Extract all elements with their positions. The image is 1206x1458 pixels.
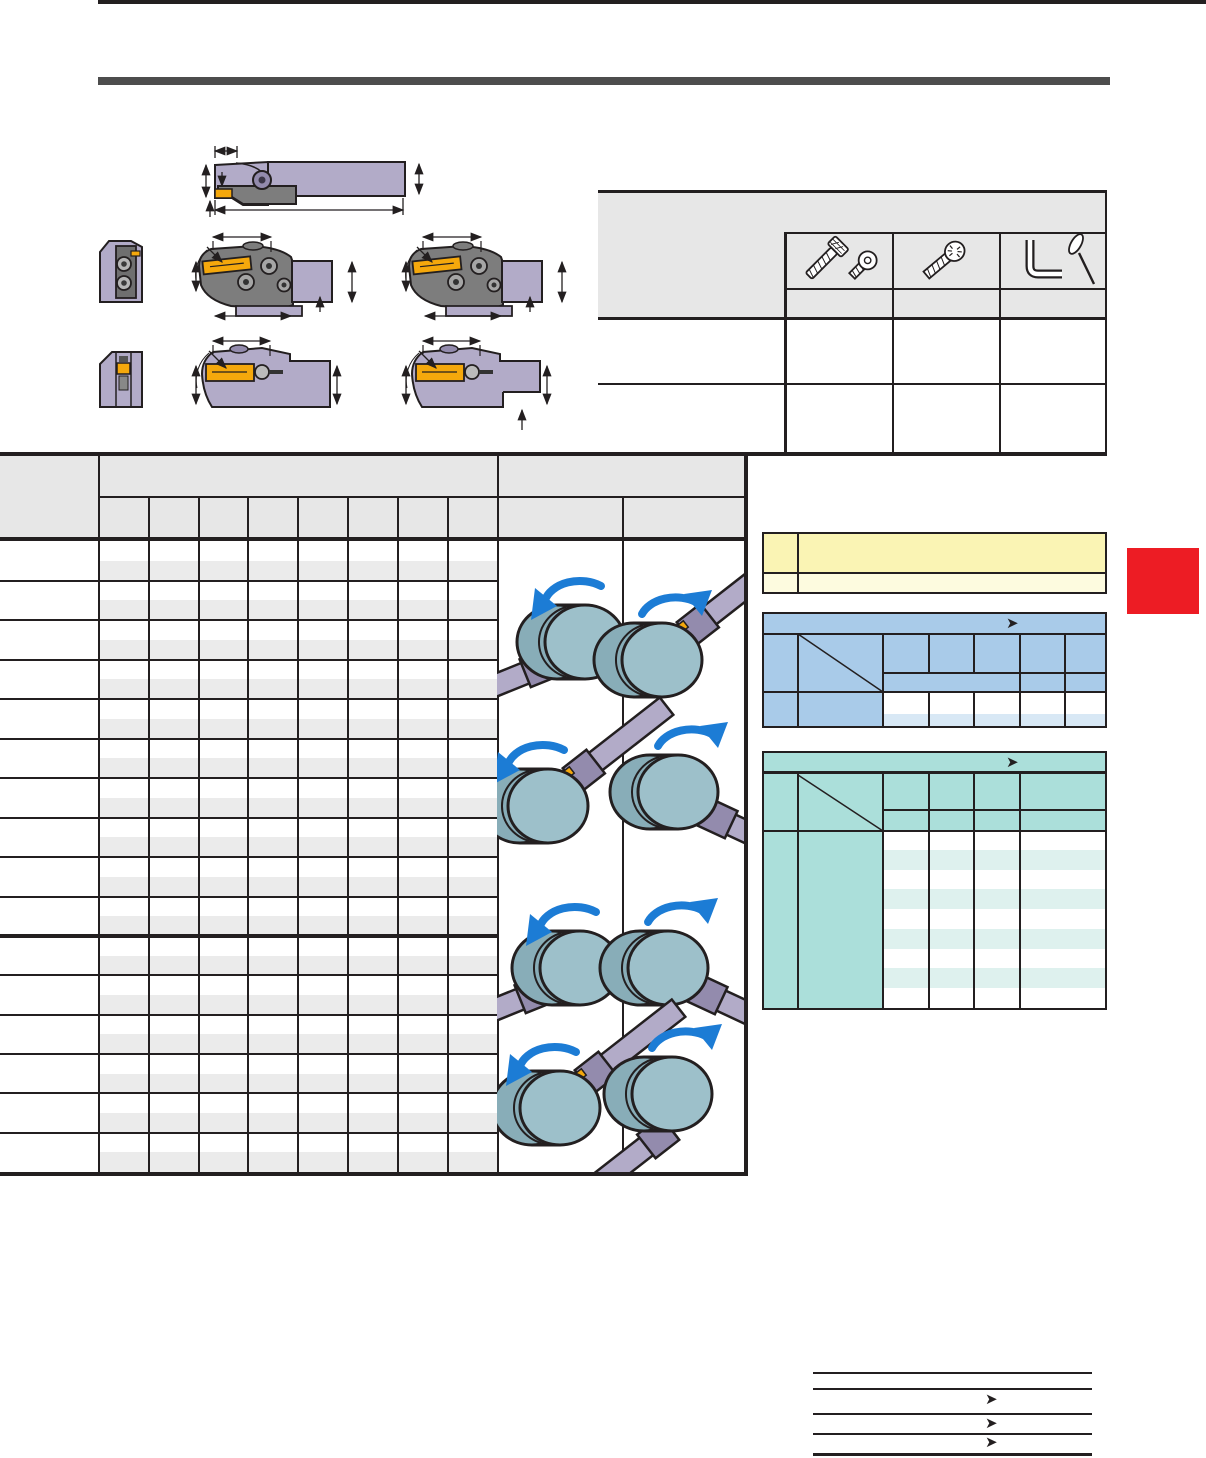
table-right-rule: [744, 452, 748, 1176]
modular-head-side-view-left: [406, 237, 562, 316]
modular-head-end-view: [100, 241, 142, 302]
teal-table-row: [882, 889, 1105, 909]
catalog-page: ➤ ➤ ➤ ➤ ➤: [0, 0, 1206, 1458]
shank-holder-side-view: [206, 146, 419, 217]
teal-table-row: [882, 949, 1105, 969]
teal-table-row: [882, 968, 1105, 988]
column-divider: [98, 456, 100, 1172]
blue-selection-table: ➤: [762, 612, 1107, 728]
insert-screw-icon: [906, 232, 986, 284]
header-divider: [98, 496, 744, 498]
footer-link-arrow-icon: ➤: [985, 1392, 998, 1407]
teal-left-column-block: [764, 830, 882, 1008]
blue-data-row-lower: [882, 714, 1105, 726]
teal-table-row: [882, 909, 1105, 929]
column-divider: [297, 496, 299, 1172]
blue-header-arrow-icon: ➤: [1006, 616, 1019, 631]
blue-diagonal-divider: [797, 633, 884, 693]
yellow-note-row-2: [764, 574, 1105, 592]
clamp-screw-icon: [796, 230, 890, 286]
teal-table-row: [882, 988, 1105, 1008]
column-divider: [447, 496, 449, 1172]
blade-head-end-view: [100, 352, 142, 407]
teal-table-row: [882, 929, 1105, 949]
blade-head-side-view-right: [196, 341, 337, 407]
column-divider: [198, 496, 200, 1172]
yellow-note-table: [762, 532, 1107, 594]
column-divider: [347, 496, 349, 1172]
footer-link-arrow-icon: ➤: [985, 1435, 998, 1450]
teal-table-row: [882, 870, 1105, 890]
footer-link-arrow-icon: ➤: [985, 1416, 998, 1431]
page-index-tab: [1127, 548, 1199, 614]
modular-head-side-view-right: [196, 237, 352, 316]
spare-parts-table: [598, 190, 1107, 452]
column-divider: [397, 496, 399, 1172]
table-bottom-rule: [0, 1172, 748, 1176]
yellow-note-row-1: [764, 534, 1105, 574]
teal-diagonal-divider: [797, 774, 884, 832]
column-divider: [247, 496, 249, 1172]
main-dimensions-table: [0, 452, 748, 1179]
wrench-screwdriver-icon: [1010, 230, 1102, 290]
section-title-rule: [98, 77, 1110, 85]
page-top-rule: [98, 0, 1206, 4]
teal-table-row: [882, 830, 1105, 850]
column-divider: [148, 496, 150, 1172]
technical-drawings: [85, 135, 590, 450]
application-illustrations: [497, 541, 744, 1172]
teal-table-row: [882, 850, 1105, 870]
teal-header-arrow-icon: ➤: [1006, 755, 1019, 770]
footer-reference-links: ➤ ➤ ➤: [813, 1372, 1092, 1457]
blue-data-row-upper: [882, 693, 1105, 714]
teal-selection-table: ➤: [762, 751, 1107, 1010]
